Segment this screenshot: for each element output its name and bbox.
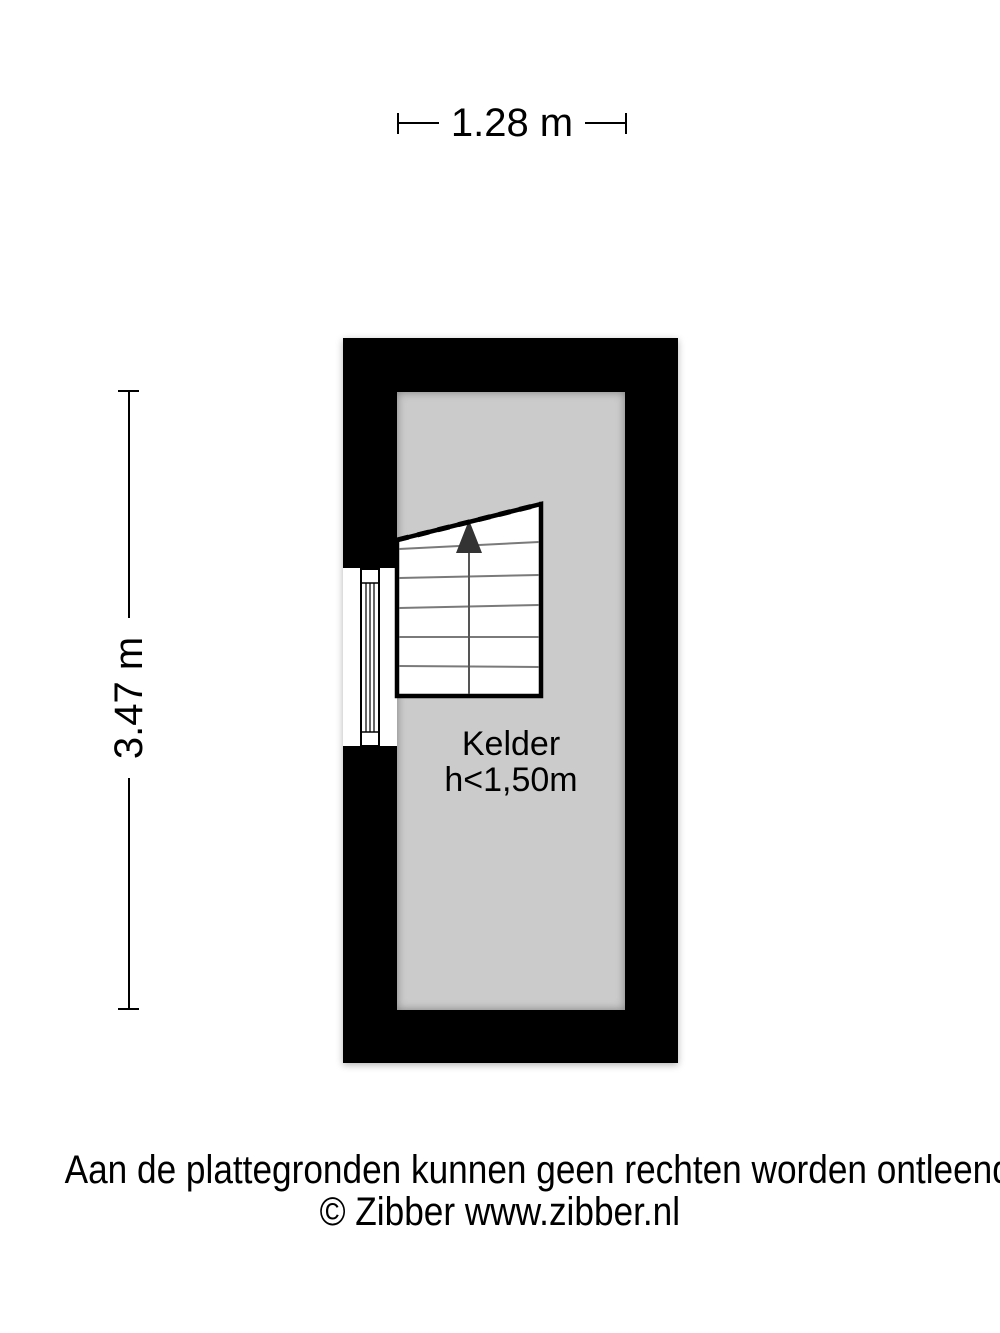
room-label: Kelder h<1,50m [397, 726, 625, 798]
dimension-width: 1.28 m [397, 102, 627, 146]
staircase-icon [390, 496, 546, 702]
dimension-width-line-right [585, 122, 625, 124]
room-name: Kelder [397, 726, 625, 762]
window-icon [355, 565, 389, 751]
room-height-note: h<1,50m [397, 762, 625, 798]
dimension-width-cap-right [625, 113, 627, 134]
dimension-height-cap-bottom [118, 1008, 139, 1010]
dimension-height-line-top [128, 392, 130, 618]
dimension-height-label: 3.47 m [108, 637, 150, 759]
dimension-height: 3.47 m [108, 390, 150, 1010]
floorplan-page: 1.28 m 3.47 m [0, 0, 1000, 1333]
copyright-text: © Zibber www.zibber.nl [0, 1190, 1000, 1234]
disclaimer-text: Aan de plattegronden kunnen geen rechten… [0, 1148, 1000, 1192]
dimension-height-line-bottom [128, 778, 130, 1008]
